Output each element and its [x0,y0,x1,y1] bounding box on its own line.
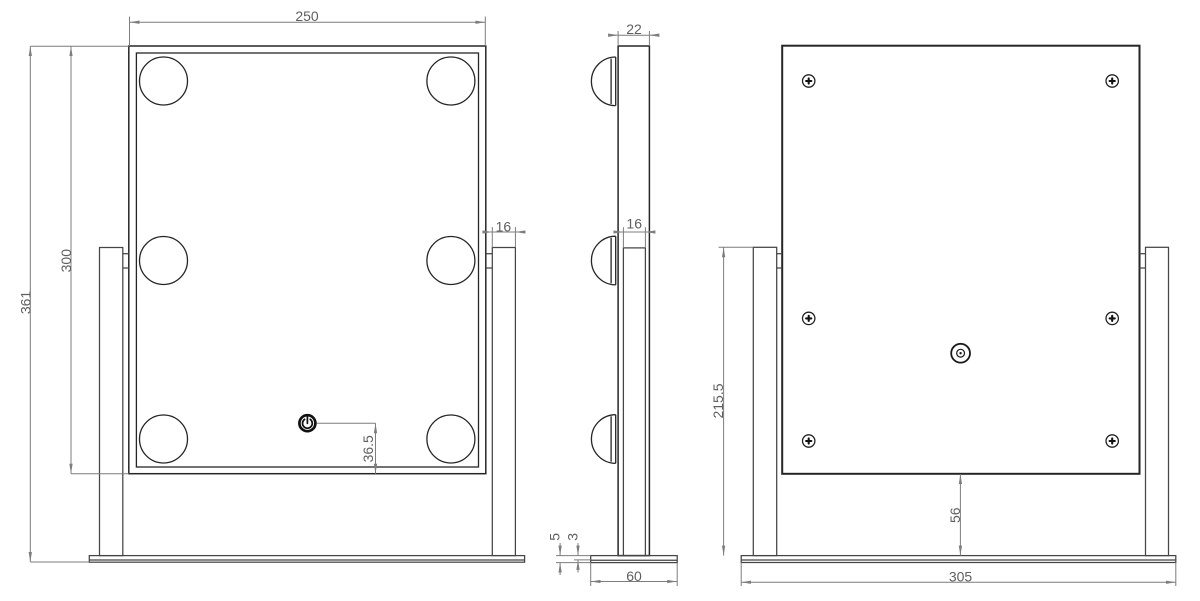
svg-text:22: 22 [626,21,642,37]
svg-text:36.5: 36.5 [360,435,376,462]
svg-text:5: 5 [547,533,563,541]
svg-text:215.5: 215.5 [710,383,726,418]
svg-text:300: 300 [58,249,74,273]
svg-text:3: 3 [565,533,581,541]
svg-text:56: 56 [947,507,963,523]
svg-text:250: 250 [295,8,319,24]
svg-text:16: 16 [626,216,642,232]
svg-text:16: 16 [496,218,512,234]
svg-text:361: 361 [17,291,33,315]
svg-text:305: 305 [949,569,973,585]
svg-text:60: 60 [626,568,642,584]
